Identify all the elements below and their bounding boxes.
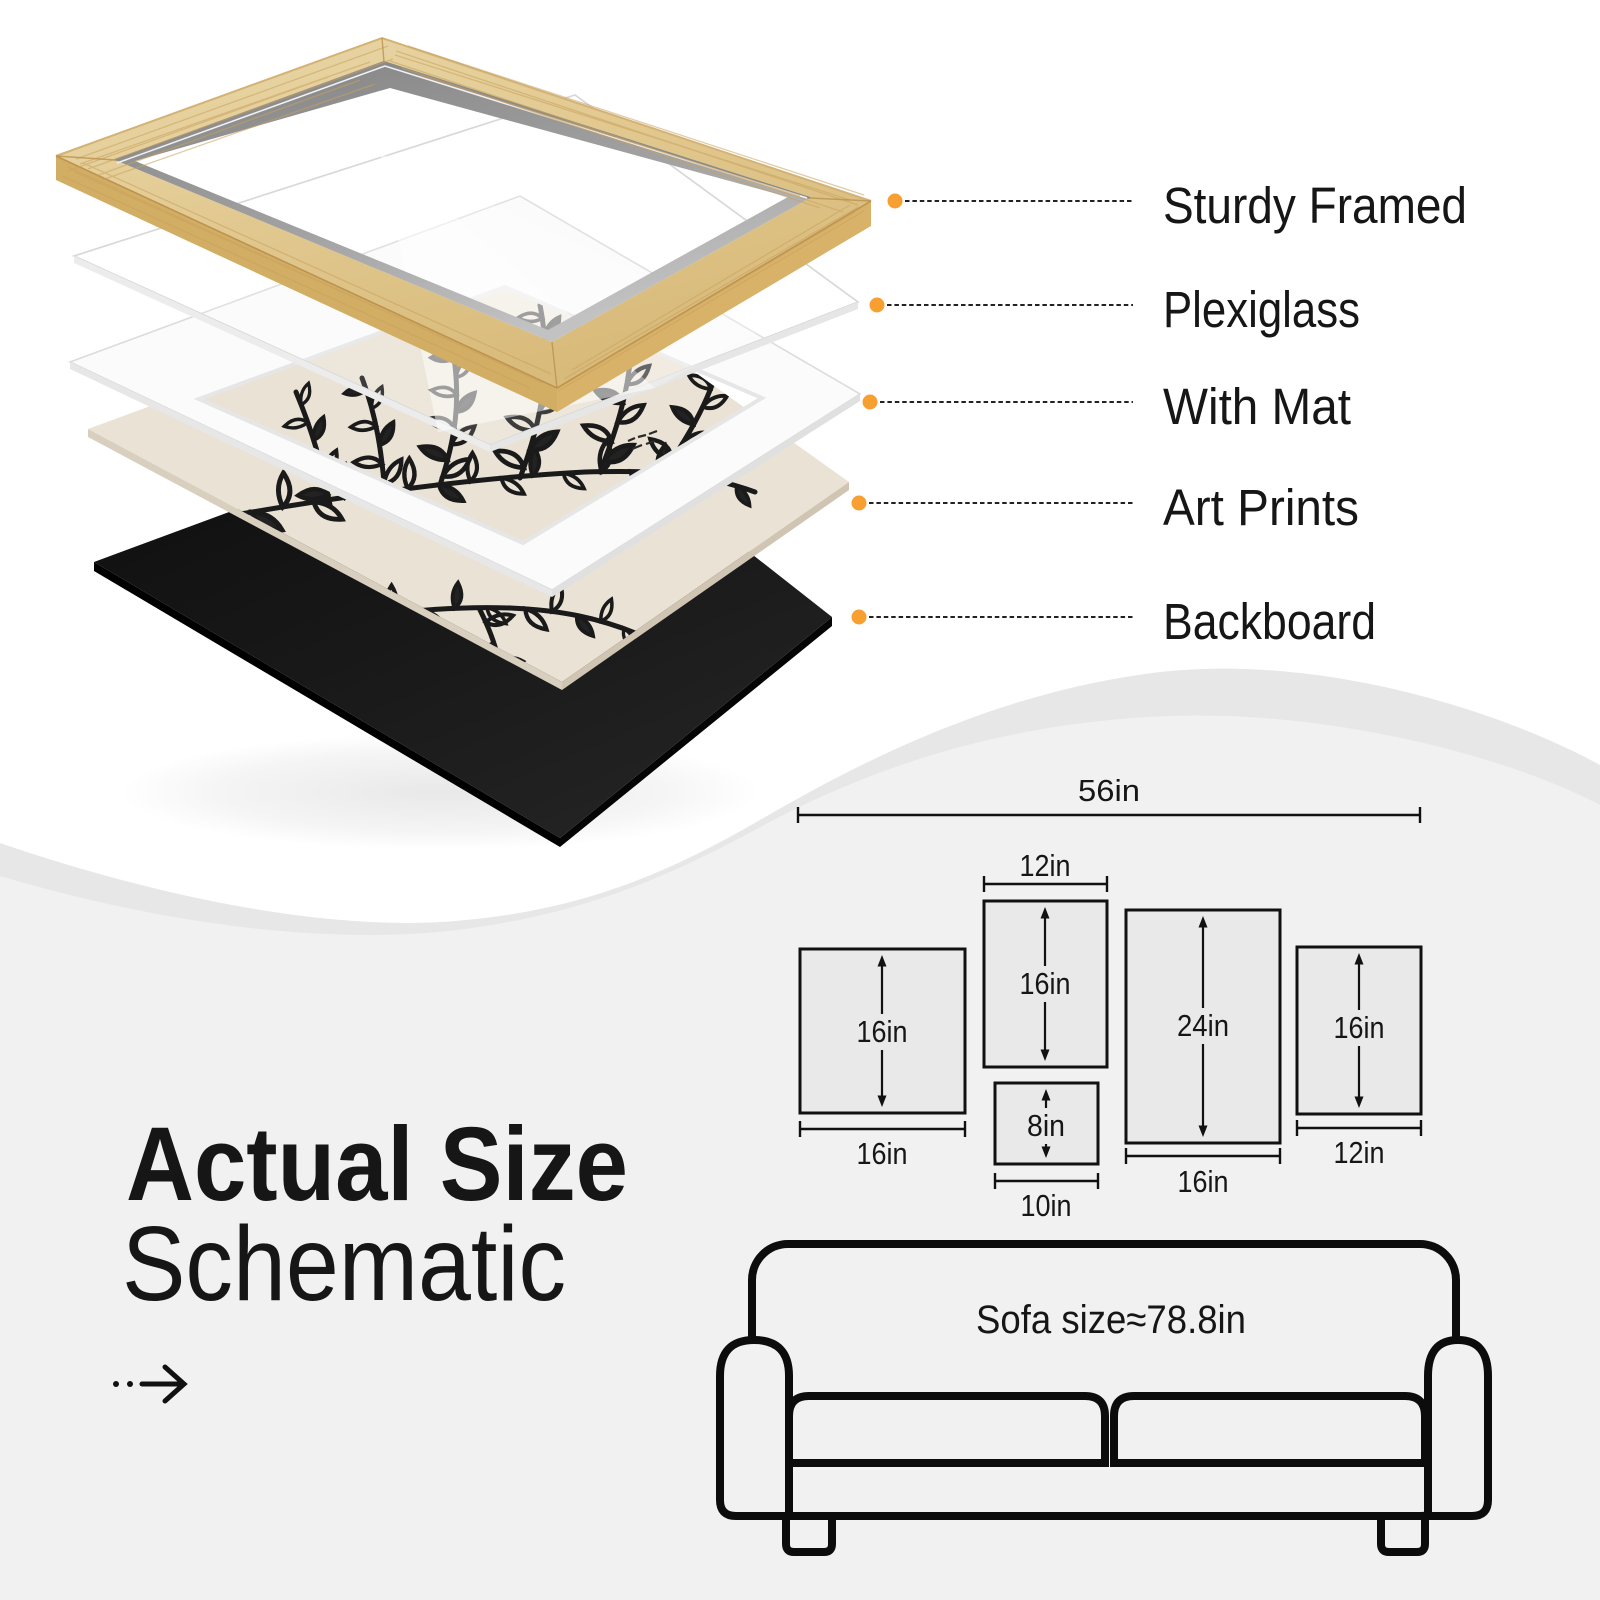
svg-text:Art Prints: Art Prints (1163, 479, 1359, 536)
svg-text:Sturdy Framed: Sturdy Framed (1163, 177, 1467, 234)
svg-text:56in: 56in (1078, 773, 1140, 808)
svg-text:Schematic: Schematic (122, 1205, 566, 1323)
svg-text:16in: 16in (1020, 966, 1071, 1001)
svg-text:12in: 12in (1334, 1135, 1385, 1170)
svg-text:Plexiglass: Plexiglass (1163, 281, 1360, 338)
svg-text:16in: 16in (1334, 1010, 1385, 1045)
svg-text:24in: 24in (1177, 1008, 1229, 1043)
svg-text:16in: 16in (857, 1014, 908, 1049)
svg-text:With Mat: With Mat (1163, 378, 1351, 435)
svg-text:Backboard: Backboard (1163, 593, 1376, 650)
svg-text:16in: 16in (857, 1136, 908, 1171)
svg-text:8in: 8in (1027, 1108, 1065, 1143)
svg-text:12in: 12in (1020, 848, 1071, 883)
svg-text:Sofa size≈78.8in: Sofa size≈78.8in (976, 1298, 1246, 1342)
svg-text:10in: 10in (1021, 1188, 1072, 1223)
svg-text:16in: 16in (1178, 1164, 1229, 1199)
